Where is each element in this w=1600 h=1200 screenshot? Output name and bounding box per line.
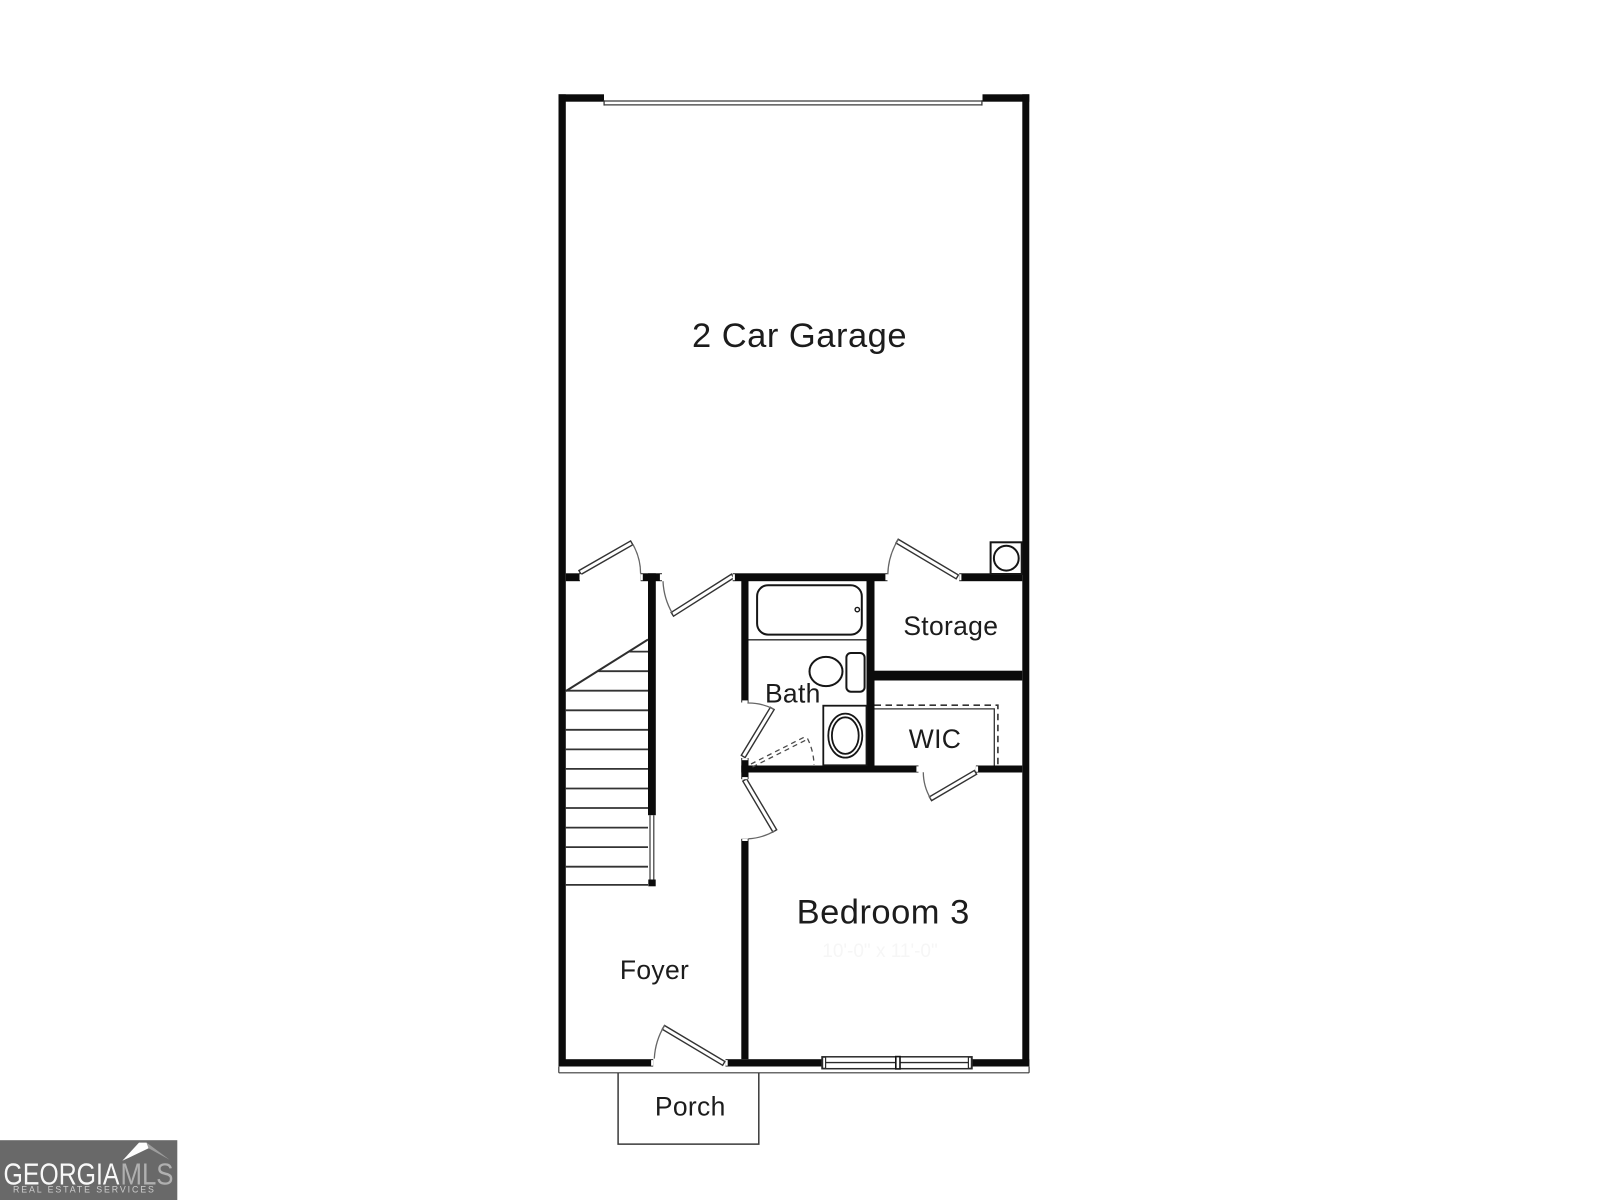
svg-text:WIC: WIC [909, 724, 961, 754]
svg-text:Bedroom 3: Bedroom 3 [797, 894, 970, 932]
svg-text:2 Car Garage: 2 Car Garage [692, 317, 907, 355]
svg-text:Foyer: Foyer [620, 955, 689, 985]
svg-text:Storage: Storage [903, 611, 998, 641]
svg-text:10'-0" x 11'-0": 10'-0" x 11'-0" [822, 941, 937, 962]
svg-text:Porch: Porch [655, 1092, 726, 1122]
svg-text:Bath: Bath [765, 679, 821, 709]
svg-text:REAL ESTATE SERVICES: REAL ESTATE SERVICES [13, 1185, 156, 1195]
